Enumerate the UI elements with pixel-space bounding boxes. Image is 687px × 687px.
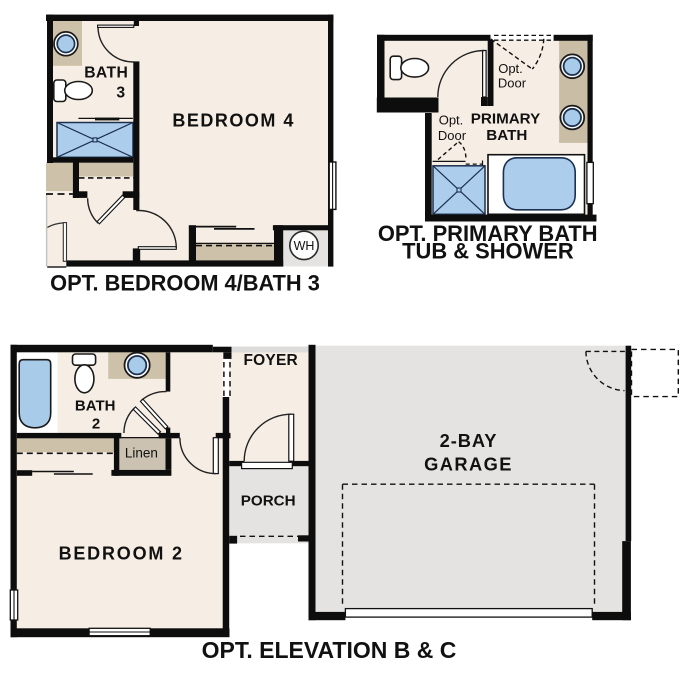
svg-text:OPT. ELEVATION B & C: OPT. ELEVATION B & C: [202, 637, 457, 663]
svg-text:Door: Door: [438, 128, 467, 143]
svg-text:Opt.: Opt.: [439, 113, 464, 128]
svg-text:WH: WH: [294, 239, 315, 253]
svg-text:Linen: Linen: [125, 446, 158, 461]
svg-text:3: 3: [116, 85, 125, 102]
svg-text:BATH: BATH: [75, 398, 116, 415]
svg-text:2-BAY: 2-BAY: [440, 430, 498, 451]
svg-text:GARAGE: GARAGE: [424, 453, 513, 474]
svg-text:Door: Door: [498, 75, 527, 90]
svg-text:PRIMARY: PRIMARY: [471, 110, 540, 127]
svg-text:TUB & SHOWER: TUB & SHOWER: [402, 239, 574, 264]
svg-text:PORCH: PORCH: [241, 493, 296, 510]
svg-text:OPT. BEDROOM 4/BATH 3: OPT. BEDROOM 4/BATH 3: [50, 271, 320, 296]
svg-text:BATH: BATH: [84, 65, 128, 82]
svg-text:BEDROOM 2: BEDROOM 2: [59, 544, 184, 564]
svg-text:BEDROOM 4: BEDROOM 4: [172, 111, 295, 131]
svg-text:FOYER: FOYER: [243, 352, 297, 369]
svg-text:Opt.: Opt.: [498, 61, 523, 76]
svg-text:BATH: BATH: [486, 127, 527, 144]
svg-text:2: 2: [92, 416, 100, 433]
